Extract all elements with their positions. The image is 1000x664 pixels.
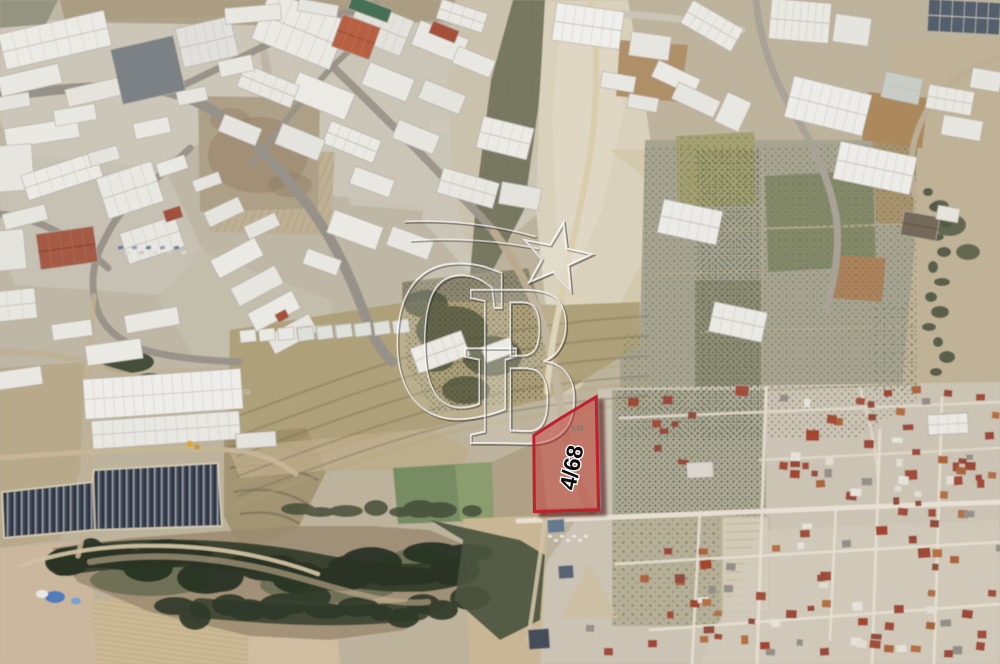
svg-text:SM: SM [571,423,584,433]
